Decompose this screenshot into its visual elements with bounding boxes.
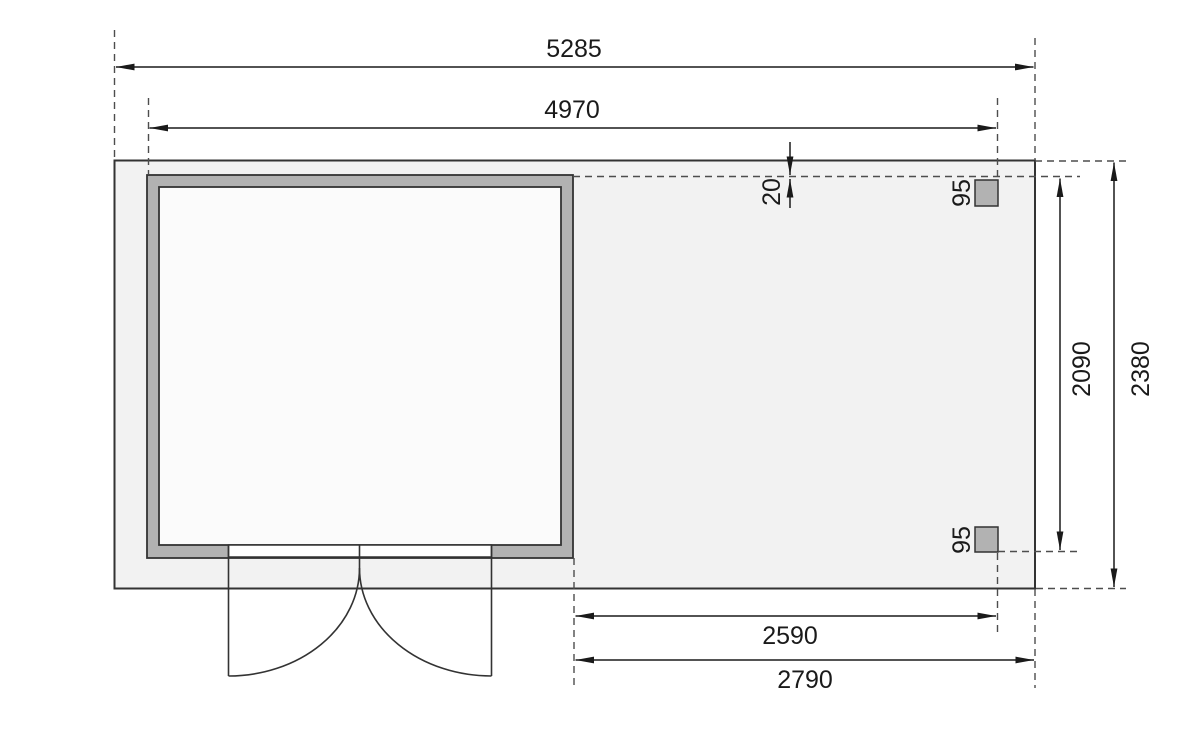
post-size-label-bottom: 95 [948, 526, 976, 554]
dimension-annex-depth-inner: 2090 [1060, 179, 1096, 551]
dimension-house-width: 4970 [150, 96, 997, 128]
dimension-overall-width: 5285 [116, 35, 1034, 67]
shed-room-interior [159, 187, 561, 545]
dimension-annex-width-inner: 2590 [576, 616, 997, 650]
dimension-label: 5285 [546, 35, 602, 63]
dimension-label: 20 [758, 178, 786, 206]
roof-post-bottom [975, 527, 998, 552]
floor-plan-canvas: 5285 4970 20 95 95 2090 2380 2590 2790 [0, 0, 1200, 753]
roof-post-top [975, 180, 998, 206]
dimension-overall-depth: 2380 [1114, 163, 1155, 588]
floor-plan-page: 5285 4970 20 95 95 2090 2380 2590 2790 [0, 0, 1200, 753]
dimension-label: 2090 [1068, 341, 1096, 397]
dimension-label: 2380 [1127, 341, 1155, 397]
dimension-annex-width-overall: 2790 [576, 660, 1035, 694]
dimension-label: 4970 [544, 96, 600, 124]
dimension-label: 2790 [777, 666, 833, 694]
post-size-label-top: 95 [948, 179, 976, 207]
dimension-label: 2590 [762, 622, 818, 650]
